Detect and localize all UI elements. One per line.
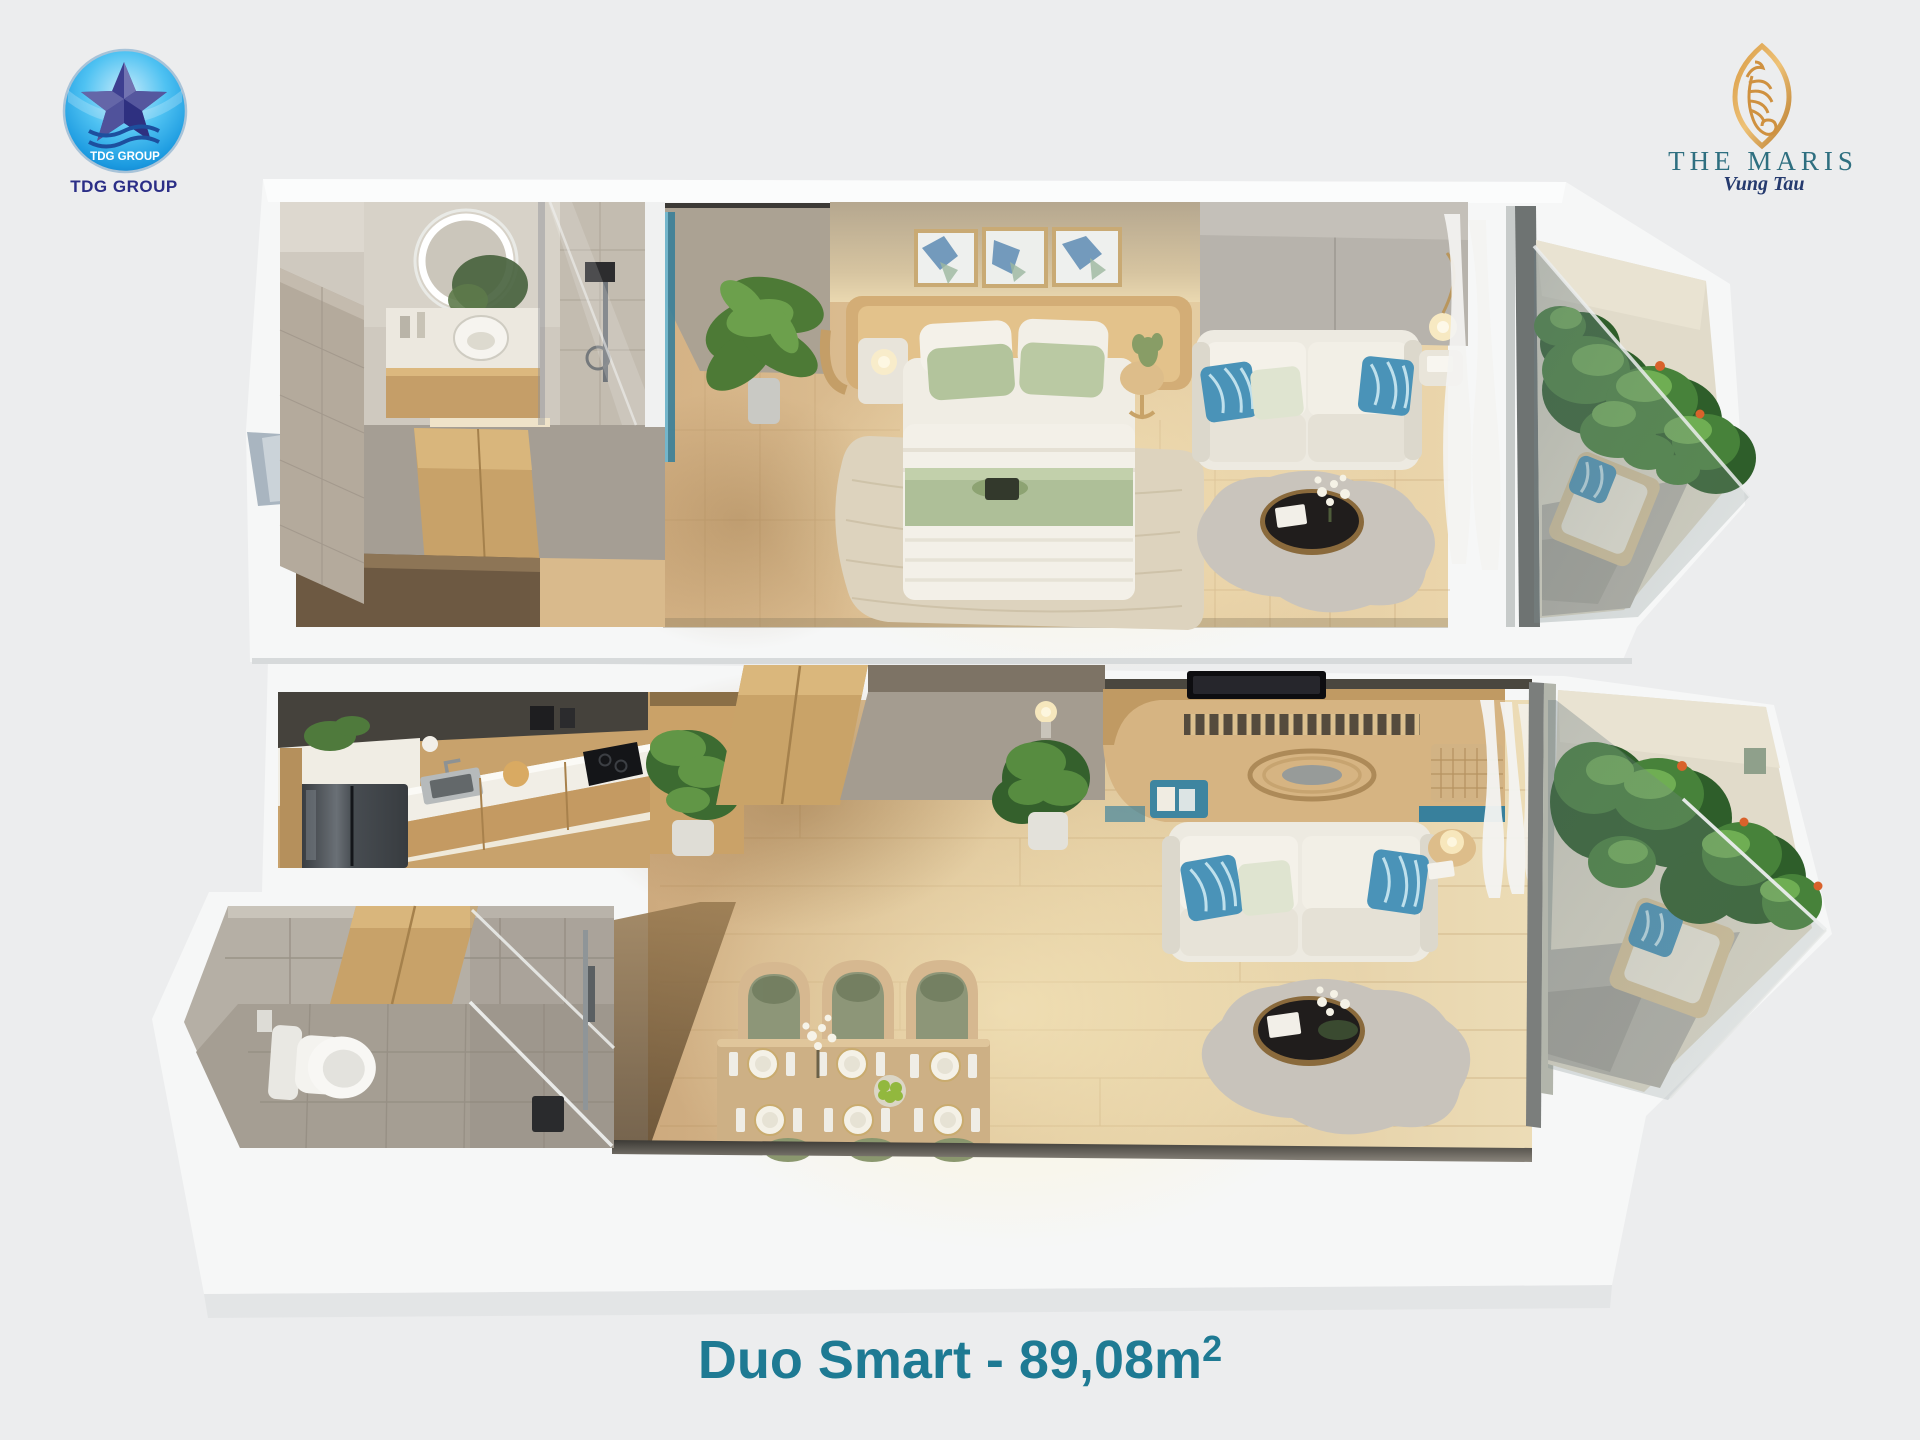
svg-text:TDG GROUP: TDG GROUP [90,151,160,163]
svg-text:THE MARIS: THE MARIS [1668,146,1858,176]
svg-text:Duo Smart - 89,08m2: Duo Smart - 89,08m2 [698,1328,1222,1390]
svg-text:Vung Tau: Vung Tau [1724,173,1805,195]
svg-text:TDG GROUP: TDG GROUP [70,177,177,196]
